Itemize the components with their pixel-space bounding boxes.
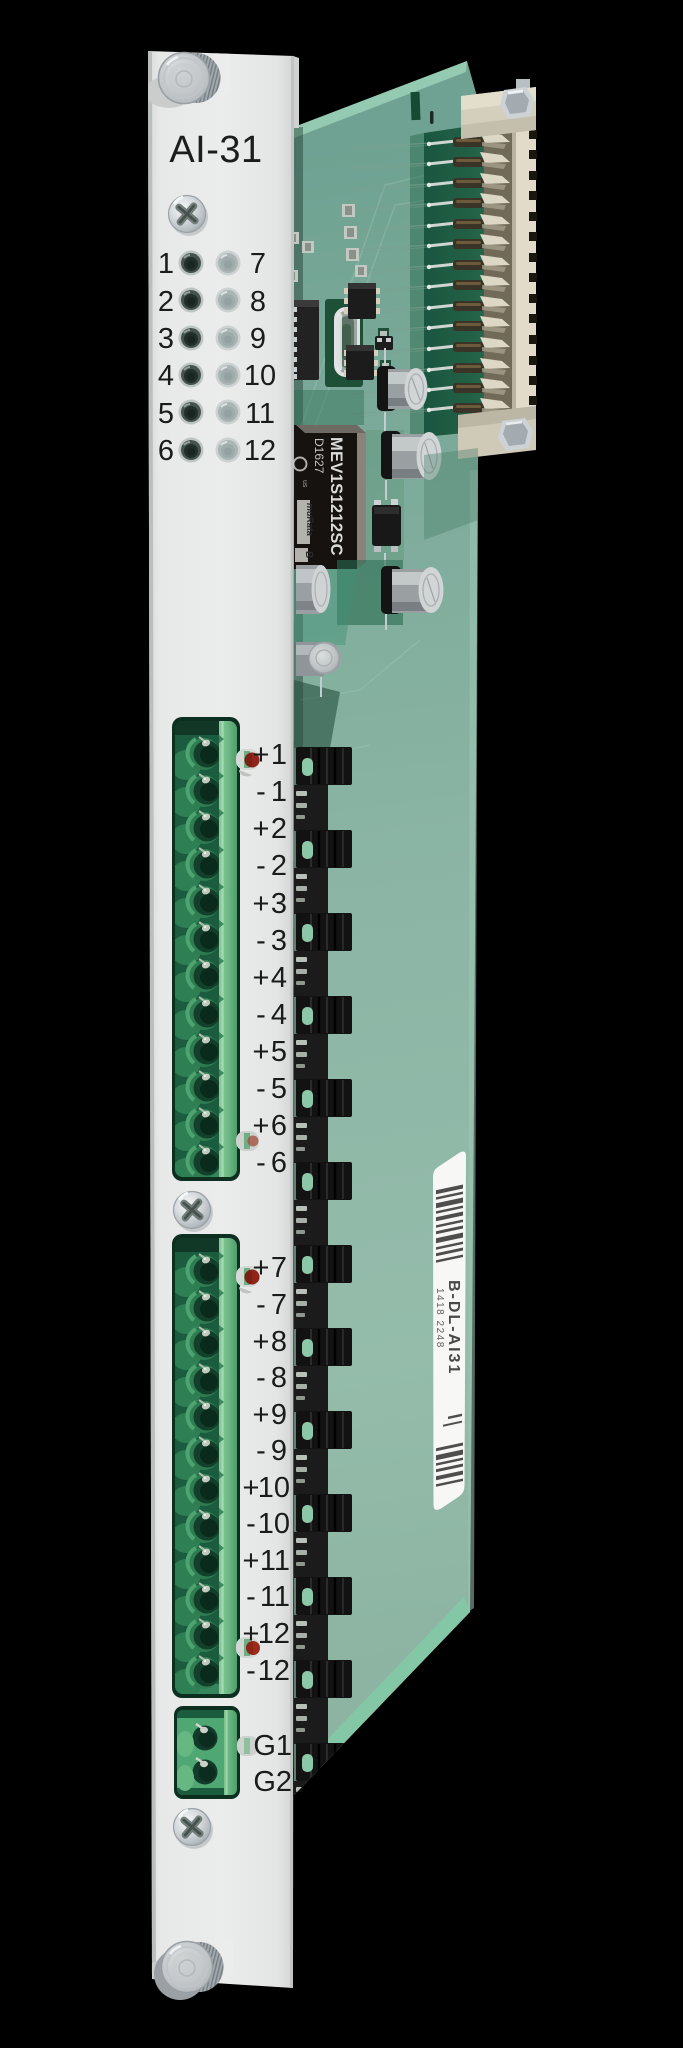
svg-text:12: 12 xyxy=(258,1655,290,1687)
svg-text:+: + xyxy=(253,1036,270,1068)
svg-text:4: 4 xyxy=(271,999,287,1031)
svg-text:4: 4 xyxy=(158,360,174,392)
svg-text:D1627: D1627 xyxy=(312,438,326,474)
svg-text:1: 1 xyxy=(271,739,287,771)
svg-text:5: 5 xyxy=(271,1036,287,1068)
svg-text:3: 3 xyxy=(158,323,174,355)
svg-text:8: 8 xyxy=(271,1326,287,1358)
svg-text:G1: G1 xyxy=(253,1730,292,1762)
svg-text:-: - xyxy=(256,925,266,957)
svg-text:AI-31: AI-31 xyxy=(169,129,262,171)
svg-text:B-DL-AI31: B-DL-AI31 xyxy=(445,1280,462,1375)
svg-text:2: 2 xyxy=(271,850,287,882)
svg-text:-: - xyxy=(256,776,266,808)
svg-text:8: 8 xyxy=(250,286,266,318)
svg-text:-: - xyxy=(246,1581,256,1613)
svg-text:1418 2248: 1418 2248 xyxy=(434,1288,445,1349)
svg-text:+: + xyxy=(253,1326,270,1358)
svg-text:+: + xyxy=(253,739,270,771)
svg-text:8: 8 xyxy=(271,1362,287,1394)
svg-text:+: + xyxy=(253,1399,270,1431)
svg-text:7: 7 xyxy=(271,1289,287,1321)
svg-text:+: + xyxy=(253,1110,270,1142)
svg-text:3: 3 xyxy=(271,925,287,957)
svg-text:10: 10 xyxy=(258,1508,290,1540)
svg-text:+: + xyxy=(243,1545,260,1577)
svg-text:3: 3 xyxy=(271,888,287,920)
svg-text:+: + xyxy=(253,888,270,920)
svg-text:-: - xyxy=(256,1289,266,1321)
svg-text:MEV1S1212SC: MEV1S1212SC xyxy=(327,437,345,556)
svg-text:10: 10 xyxy=(258,1472,290,1504)
svg-text:7: 7 xyxy=(271,1252,287,1284)
svg-text:+: + xyxy=(253,813,270,845)
svg-text:11: 11 xyxy=(260,1545,290,1577)
svg-text:-: - xyxy=(256,999,266,1031)
svg-text:-: - xyxy=(256,1362,266,1394)
svg-text:us: us xyxy=(301,480,308,488)
svg-text:5: 5 xyxy=(158,398,174,430)
svg-text:G2: G2 xyxy=(253,1766,292,1798)
svg-text:-: - xyxy=(256,1147,266,1179)
svg-text:-: - xyxy=(256,850,266,882)
svg-text:-: - xyxy=(246,1508,256,1540)
svg-text:10: 10 xyxy=(244,360,276,392)
svg-text:2: 2 xyxy=(271,813,287,845)
svg-text:+: + xyxy=(253,1252,270,1284)
svg-text:-: - xyxy=(256,1073,266,1105)
svg-text:11: 11 xyxy=(245,398,275,430)
svg-text:6: 6 xyxy=(158,435,174,467)
svg-text:1: 1 xyxy=(271,776,287,808)
svg-text:6: 6 xyxy=(271,1147,287,1179)
svg-text:6: 6 xyxy=(271,1110,287,1142)
svg-text:7: 7 xyxy=(250,248,266,280)
svg-text:-: - xyxy=(246,1655,256,1687)
svg-text:B: B xyxy=(303,551,314,558)
svg-text:4: 4 xyxy=(271,962,287,994)
svg-text:muRata: muRata xyxy=(305,503,315,536)
svg-text:+: + xyxy=(253,962,270,994)
svg-text:1: 1 xyxy=(158,248,174,280)
svg-text:2: 2 xyxy=(158,286,174,318)
svg-text:9: 9 xyxy=(250,323,266,355)
svg-text:12: 12 xyxy=(244,435,276,467)
svg-text:9: 9 xyxy=(271,1435,287,1467)
svg-text:11: 11 xyxy=(260,1581,290,1613)
svg-text:9: 9 xyxy=(271,1399,287,1431)
svg-text:12: 12 xyxy=(258,1618,290,1650)
svg-text:5: 5 xyxy=(271,1073,287,1105)
svg-text:-: - xyxy=(256,1435,266,1467)
